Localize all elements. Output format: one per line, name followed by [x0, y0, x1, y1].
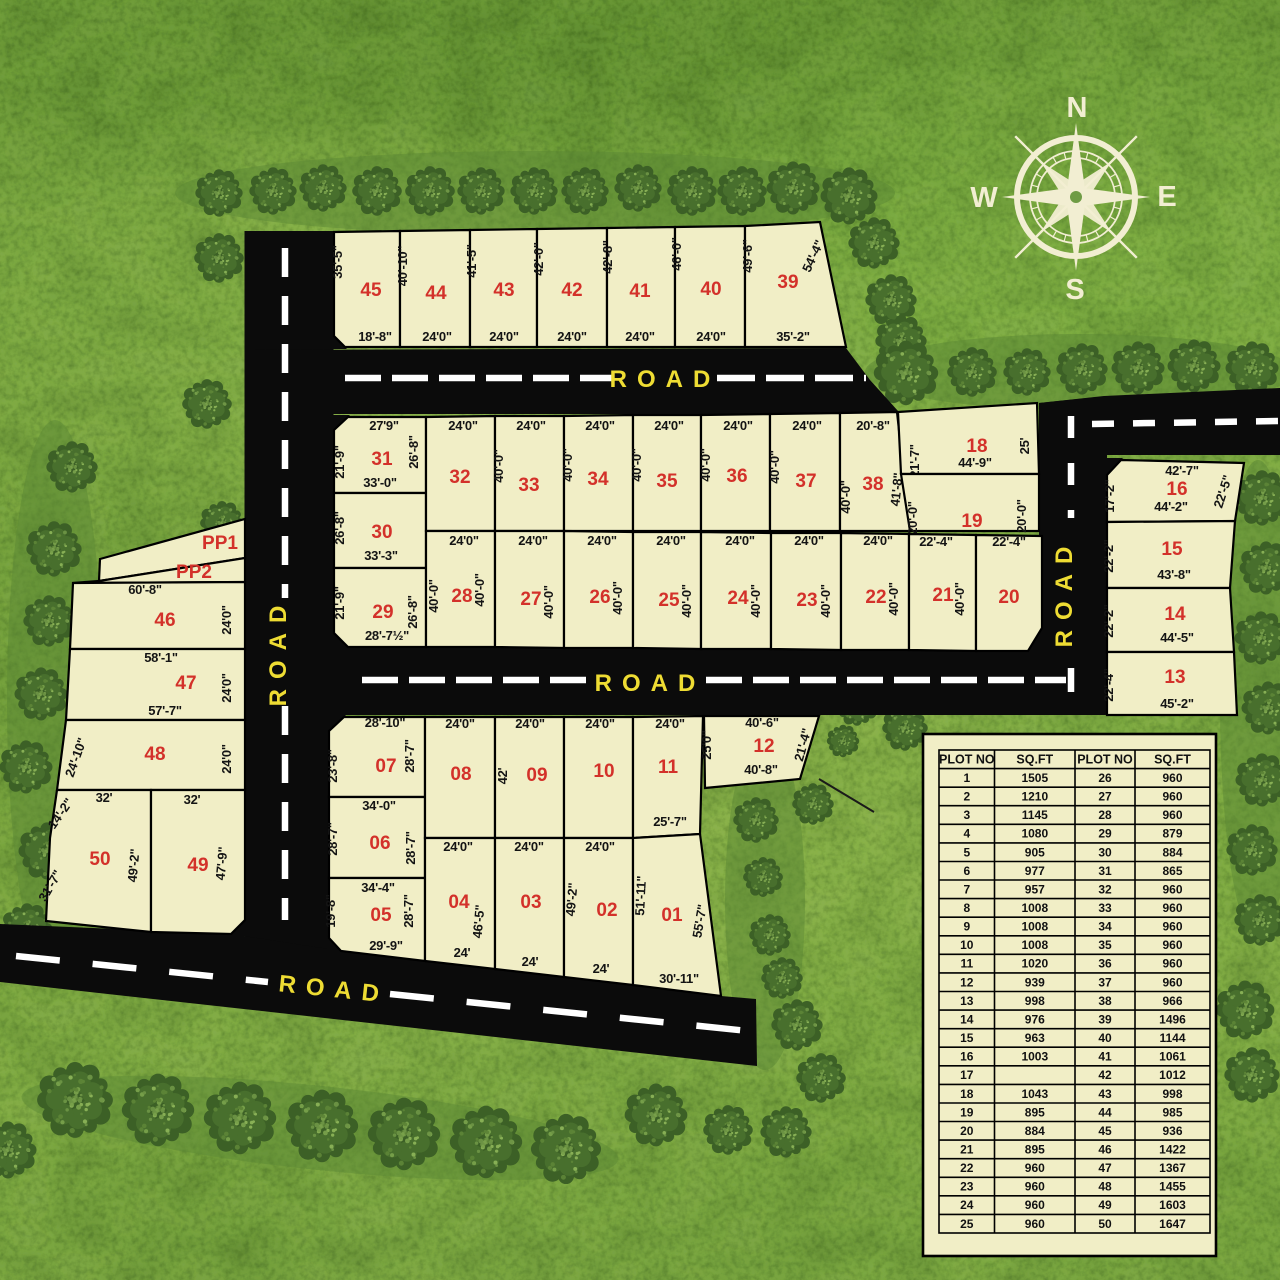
svg-text:40'-0": 40'-0" [560, 448, 575, 482]
svg-text:1008: 1008 [1021, 901, 1048, 915]
svg-text:10: 10 [960, 938, 974, 952]
svg-text:1496: 1496 [1159, 1013, 1186, 1027]
svg-text:11: 11 [960, 957, 973, 971]
svg-text:960: 960 [1025, 1217, 1045, 1231]
svg-text:960: 960 [1162, 771, 1182, 785]
svg-text:25'0": 25'0" [699, 730, 714, 760]
svg-text:49: 49 [187, 855, 208, 876]
svg-text:884: 884 [1025, 1124, 1045, 1138]
svg-text:24'0": 24'0" [654, 418, 684, 433]
svg-text:42: 42 [561, 280, 582, 301]
svg-text:49'-6": 49'-6" [740, 239, 755, 273]
svg-text:10: 10 [593, 761, 614, 782]
svg-text:43: 43 [1098, 1087, 1112, 1101]
svg-text:24'0": 24'0" [587, 533, 617, 548]
svg-text:18'-8": 18'-8" [358, 329, 392, 344]
svg-text:957: 957 [1025, 882, 1045, 896]
svg-text:998: 998 [1025, 994, 1045, 1008]
svg-text:30: 30 [1098, 845, 1112, 859]
svg-text:16: 16 [960, 1050, 974, 1064]
svg-text:21: 21 [960, 1143, 974, 1157]
svg-text:18: 18 [966, 436, 987, 457]
svg-text:21: 21 [932, 585, 954, 606]
svg-text:40'-0": 40'-0" [541, 585, 556, 619]
svg-text:40'-8": 40'-8" [744, 762, 778, 777]
svg-text:41: 41 [1098, 1050, 1112, 1064]
svg-text:N: N [1067, 92, 1088, 124]
svg-text:28: 28 [1098, 808, 1112, 822]
svg-text:1505: 1505 [1021, 771, 1048, 785]
svg-text:1043: 1043 [1021, 1087, 1048, 1101]
svg-text:24'0": 24'0" [625, 329, 655, 344]
svg-text:29'-9": 29'-9" [369, 938, 403, 953]
svg-text:49'-2": 49'-2" [125, 848, 143, 883]
svg-text:24'0": 24'0" [445, 716, 475, 731]
svg-text:15: 15 [960, 1031, 974, 1045]
svg-text:895: 895 [1025, 1105, 1045, 1119]
svg-text:50: 50 [89, 849, 110, 870]
svg-text:44'-2": 44'-2" [1154, 499, 1188, 514]
svg-text:939: 939 [1025, 975, 1045, 989]
svg-text:42'-8": 42'-8" [600, 240, 615, 274]
svg-text:24'0": 24'0" [449, 533, 479, 548]
svg-text:23: 23 [796, 590, 817, 611]
svg-text:40'-0": 40'-0" [629, 448, 644, 482]
svg-text:960: 960 [1162, 975, 1182, 989]
svg-text:40'-6": 40'-6" [745, 715, 779, 730]
svg-text:24'0": 24'0" [656, 533, 686, 548]
svg-text:04: 04 [448, 892, 470, 913]
svg-text:21'-9": 21'-9" [332, 586, 347, 620]
svg-text:PLOT NO: PLOT NO [939, 752, 995, 766]
svg-text:27: 27 [520, 589, 541, 610]
svg-text:PP1: PP1 [202, 533, 238, 554]
svg-text:32': 32' [184, 792, 201, 807]
svg-text:1145: 1145 [1022, 808, 1048, 822]
svg-text:960: 960 [1162, 920, 1182, 934]
svg-text:60'-8": 60'-8" [128, 582, 162, 597]
svg-text:24'0": 24'0" [515, 716, 545, 731]
svg-text:36: 36 [726, 466, 747, 487]
svg-text:21'-7": 21'-7" [907, 444, 922, 478]
svg-text:43'-8": 43'-8" [1157, 567, 1191, 582]
svg-text:998: 998 [1162, 1087, 1182, 1101]
svg-text:33'-3": 33'-3" [364, 548, 398, 563]
svg-text:24'0": 24'0" [443, 839, 473, 854]
svg-text:40'-0": 40'-0" [952, 582, 967, 616]
svg-text:29: 29 [1098, 827, 1112, 841]
svg-text:24'0": 24'0" [585, 418, 615, 433]
svg-text:25': 25' [1017, 437, 1032, 454]
svg-text:27: 27 [1098, 790, 1112, 804]
svg-text:24: 24 [727, 588, 749, 609]
svg-text:24'0": 24'0" [219, 673, 234, 703]
svg-text:24'0": 24'0" [696, 329, 726, 344]
svg-text:46: 46 [154, 610, 175, 631]
svg-text:40'-0": 40'-0" [818, 584, 833, 618]
svg-text:28'-7": 28'-7" [402, 739, 417, 773]
svg-text:46: 46 [1098, 1143, 1112, 1157]
svg-text:1422: 1422 [1159, 1143, 1186, 1157]
svg-text:40'-10": 40'-10" [395, 246, 410, 287]
svg-text:28'-7": 28'-7" [325, 822, 340, 856]
svg-text:32': 32' [96, 790, 113, 805]
svg-text:24'0": 24'0" [514, 839, 544, 854]
svg-text:22'-2": 22'-2" [1101, 539, 1116, 573]
svg-text:33: 33 [518, 475, 539, 496]
svg-text:960: 960 [1162, 808, 1182, 822]
svg-text:50: 50 [1098, 1217, 1112, 1231]
svg-text:966: 966 [1162, 994, 1182, 1008]
svg-text:ROAD: ROAD [610, 366, 721, 393]
svg-text:1603: 1603 [1159, 1198, 1186, 1212]
svg-text:34'-4": 34'-4" [361, 880, 395, 895]
svg-text:14: 14 [1164, 604, 1186, 625]
svg-text:1367: 1367 [1159, 1161, 1186, 1175]
svg-text:22'-4": 22'-4" [919, 534, 953, 549]
svg-text:17: 17 [960, 1068, 974, 1082]
svg-text:20: 20 [960, 1124, 974, 1138]
svg-text:42: 42 [1098, 1068, 1112, 1082]
svg-text:49'-2": 49'-2" [563, 882, 581, 917]
svg-text:960: 960 [1162, 957, 1182, 971]
svg-text:21'-9": 21'-9" [332, 445, 347, 479]
svg-text:1003: 1003 [1021, 1050, 1048, 1064]
svg-text:20'-0": 20'-0" [905, 501, 920, 535]
svg-text:09: 09 [526, 765, 547, 786]
svg-text:24: 24 [960, 1198, 974, 1212]
svg-text:41'-5": 41'-5" [464, 244, 479, 278]
svg-text:30'-11": 30'-11" [659, 971, 699, 986]
svg-text:1012: 1012 [1159, 1068, 1186, 1082]
svg-text:PLOT NO: PLOT NO [1077, 752, 1133, 766]
svg-text:01: 01 [661, 905, 683, 926]
svg-text:1647: 1647 [1159, 1217, 1186, 1231]
svg-text:24': 24' [522, 954, 539, 969]
svg-text:40: 40 [700, 279, 721, 300]
svg-text:43: 43 [493, 280, 514, 301]
svg-text:PP2: PP2 [176, 562, 212, 583]
svg-text:9: 9 [963, 920, 970, 934]
svg-text:23: 23 [960, 1180, 974, 1194]
svg-text:24'0": 24'0" [489, 329, 519, 344]
svg-text:1210: 1210 [1021, 790, 1048, 804]
svg-text:12: 12 [753, 736, 774, 757]
svg-text:02: 02 [596, 900, 617, 921]
svg-text:24'0": 24'0" [516, 418, 546, 433]
svg-text:960: 960 [1025, 1161, 1045, 1175]
svg-text:24'0": 24'0" [794, 533, 824, 548]
svg-text:24'0": 24'0" [792, 418, 822, 433]
svg-text:24': 24' [593, 961, 610, 976]
svg-text:26: 26 [589, 587, 610, 608]
svg-text:27'9": 27'9" [369, 418, 399, 433]
svg-text:18: 18 [960, 1087, 974, 1101]
svg-text:22'-4": 22'-4" [1101, 668, 1116, 702]
svg-text:35'-5": 35'-5" [330, 245, 345, 279]
svg-text:12: 12 [960, 975, 974, 989]
svg-text:28'-7": 28'-7" [401, 894, 416, 928]
svg-text:24'0": 24'0" [655, 716, 685, 731]
svg-text:24'0": 24'0" [422, 329, 452, 344]
svg-text:19: 19 [960, 1105, 974, 1119]
svg-text:17'-2": 17'-2" [1102, 479, 1117, 513]
svg-text:1008: 1008 [1021, 938, 1048, 952]
svg-text:963: 963 [1025, 1031, 1045, 1045]
svg-text:15: 15 [1161, 539, 1183, 560]
svg-text:26'-8": 26'-8" [405, 595, 420, 629]
svg-text:40'-0": 40'-0" [610, 581, 625, 615]
svg-text:28'-10": 28'-10" [365, 715, 406, 730]
svg-text:976: 976 [1025, 1013, 1045, 1027]
svg-text:45'-2": 45'-2" [1160, 696, 1194, 711]
svg-text:35: 35 [656, 471, 678, 492]
svg-text:895: 895 [1025, 1143, 1045, 1157]
svg-text:40: 40 [1098, 1031, 1112, 1045]
svg-text:42'-0": 42'-0" [531, 242, 546, 276]
svg-text:24'0": 24'0" [557, 329, 587, 344]
svg-text:25'-7": 25'-7" [653, 814, 687, 829]
svg-text:03: 03 [520, 892, 541, 913]
svg-text:31: 31 [371, 449, 393, 470]
svg-text:38: 38 [1098, 994, 1112, 1008]
svg-text:57'-7": 57'-7" [148, 703, 182, 718]
svg-text:31: 31 [1098, 864, 1112, 878]
svg-text:40'-0": 40'-0" [838, 480, 853, 514]
svg-text:47: 47 [1098, 1161, 1112, 1175]
svg-text:1144: 1144 [1159, 1031, 1185, 1045]
svg-text:ROAD: ROAD [595, 670, 706, 697]
svg-text:35'-2": 35'-2" [776, 329, 810, 344]
svg-text:33: 33 [1098, 901, 1112, 915]
svg-text:884: 884 [1162, 845, 1182, 859]
svg-text:39: 39 [777, 272, 798, 293]
svg-text:936: 936 [1162, 1124, 1182, 1138]
svg-text:985: 985 [1162, 1105, 1182, 1119]
svg-text:34'-0": 34'-0" [362, 798, 396, 813]
svg-text:32: 32 [1098, 882, 1112, 896]
svg-text:40'-0": 40'-0" [767, 450, 782, 484]
svg-text:24'0": 24'0" [725, 533, 755, 548]
svg-text:40'-0": 40'-0" [698, 448, 713, 482]
svg-text:47'-9": 47'-9" [213, 846, 231, 881]
svg-text:22'-4": 22'-4" [992, 534, 1026, 549]
svg-text:960: 960 [1025, 1198, 1045, 1212]
svg-text:34: 34 [1098, 920, 1112, 934]
svg-text:24'0": 24'0" [863, 533, 893, 548]
svg-text:44: 44 [1098, 1105, 1112, 1119]
svg-text:7: 7 [963, 882, 970, 896]
svg-text:960: 960 [1162, 790, 1182, 804]
svg-text:32: 32 [449, 467, 470, 488]
svg-text:2: 2 [963, 790, 970, 804]
svg-text:14: 14 [960, 1013, 974, 1027]
svg-text:26: 26 [1098, 771, 1112, 785]
svg-text:W: W [970, 182, 998, 214]
svg-text:865: 865 [1162, 864, 1182, 878]
svg-text:20'-0": 20'-0" [1014, 499, 1029, 533]
svg-text:24'0": 24'0" [585, 839, 615, 854]
svg-text:1455: 1455 [1159, 1180, 1186, 1194]
svg-text:40'-0": 40'-0" [472, 573, 487, 607]
svg-text:ROAD: ROAD [265, 596, 292, 707]
svg-text:42': 42' [495, 767, 510, 784]
svg-text:8: 8 [963, 901, 970, 915]
svg-text:58'-1": 58'-1" [144, 650, 178, 665]
svg-text:45: 45 [360, 280, 382, 301]
svg-text:39: 39 [1098, 1013, 1112, 1027]
svg-text:20'-8": 20'-8" [856, 418, 890, 433]
svg-text:25: 25 [960, 1217, 974, 1231]
svg-text:29: 29 [372, 602, 393, 623]
svg-text:22: 22 [960, 1161, 974, 1175]
svg-text:28'-7½": 28'-7½" [365, 628, 409, 643]
svg-text:35: 35 [1098, 938, 1112, 952]
svg-text:24'0": 24'0" [219, 605, 234, 635]
svg-text:44: 44 [425, 283, 447, 304]
svg-text:11: 11 [658, 757, 679, 778]
svg-text:44'-5": 44'-5" [1160, 630, 1194, 645]
svg-text:ROAD: ROAD [1051, 537, 1078, 648]
svg-text:28'-7": 28'-7" [403, 831, 418, 865]
svg-text:37: 37 [1098, 975, 1112, 989]
svg-text:26'-8": 26'-8" [332, 511, 347, 545]
svg-text:977: 977 [1025, 864, 1045, 878]
svg-text:960: 960 [1162, 882, 1182, 896]
svg-text:25: 25 [658, 590, 680, 611]
svg-text:45: 45 [1098, 1124, 1112, 1138]
svg-text:24'0": 24'0" [723, 418, 753, 433]
svg-text:S: S [1065, 274, 1084, 306]
svg-text:28: 28 [451, 586, 472, 607]
svg-text:24'0": 24'0" [219, 744, 234, 774]
svg-text:41: 41 [629, 281, 651, 302]
svg-text:40'-0": 40'-0" [426, 579, 441, 613]
svg-text:19'-8": 19'-8" [323, 894, 338, 928]
svg-text:1061: 1061 [1159, 1050, 1186, 1064]
svg-text:1020: 1020 [1021, 957, 1048, 971]
svg-text:46'-5": 46'-5" [470, 904, 488, 939]
svg-text:49: 49 [1098, 1198, 1112, 1212]
svg-text:22'-2": 22'-2" [1101, 604, 1116, 638]
svg-text:42'-7": 42'-7" [1165, 463, 1199, 478]
svg-text:26'-8": 26'-8" [406, 435, 421, 469]
svg-text:SQ.FT: SQ.FT [1016, 752, 1053, 766]
svg-text:33'-0": 33'-0" [363, 475, 397, 490]
svg-text:24'0": 24'0" [518, 533, 548, 548]
svg-text:22: 22 [865, 587, 886, 608]
svg-text:48: 48 [1098, 1180, 1112, 1194]
svg-text:5: 5 [963, 845, 970, 859]
svg-text:20: 20 [998, 587, 1019, 608]
svg-text:879: 879 [1162, 827, 1182, 841]
svg-text:19: 19 [961, 511, 982, 532]
svg-text:13: 13 [960, 994, 974, 1008]
svg-text:13: 13 [1164, 667, 1185, 688]
svg-text:1: 1 [963, 771, 970, 785]
svg-text:24': 24' [454, 945, 471, 960]
svg-text:SQ.FT: SQ.FT [1154, 752, 1191, 766]
svg-text:48: 48 [144, 744, 165, 765]
svg-text:05: 05 [370, 905, 392, 926]
svg-text:960: 960 [1162, 938, 1182, 952]
svg-text:47: 47 [175, 673, 196, 694]
svg-text:38: 38 [862, 474, 883, 495]
svg-text:46'-0": 46'-0" [669, 237, 684, 271]
svg-text:960: 960 [1025, 1180, 1045, 1194]
svg-text:51'-11": 51'-11" [632, 875, 649, 916]
svg-text:40'-0": 40'-0" [679, 584, 694, 618]
svg-text:960: 960 [1162, 901, 1182, 915]
svg-text:07: 07 [375, 756, 396, 777]
svg-text:40'-0": 40'-0" [886, 582, 901, 616]
svg-text:1008: 1008 [1021, 920, 1048, 934]
svg-text:3: 3 [963, 808, 970, 822]
svg-text:08: 08 [450, 764, 471, 785]
svg-text:40'-0": 40'-0" [748, 584, 763, 618]
svg-text:40'-0": 40'-0" [491, 449, 506, 483]
svg-text:1080: 1080 [1021, 827, 1048, 841]
svg-text:16: 16 [1166, 479, 1187, 500]
svg-text:24'0": 24'0" [585, 716, 615, 731]
svg-text:E: E [1157, 181, 1176, 213]
svg-text:37: 37 [795, 471, 816, 492]
svg-text:44'-9": 44'-9" [958, 455, 992, 470]
svg-text:36: 36 [1098, 957, 1112, 971]
svg-text:30: 30 [371, 522, 392, 543]
svg-text:34: 34 [587, 469, 609, 490]
svg-text:24'0": 24'0" [448, 418, 478, 433]
svg-text:6: 6 [963, 864, 970, 878]
svg-text:06: 06 [369, 833, 390, 854]
svg-text:4: 4 [963, 827, 970, 841]
svg-text:23'-8": 23'-8" [325, 749, 340, 783]
svg-text:905: 905 [1025, 845, 1045, 859]
